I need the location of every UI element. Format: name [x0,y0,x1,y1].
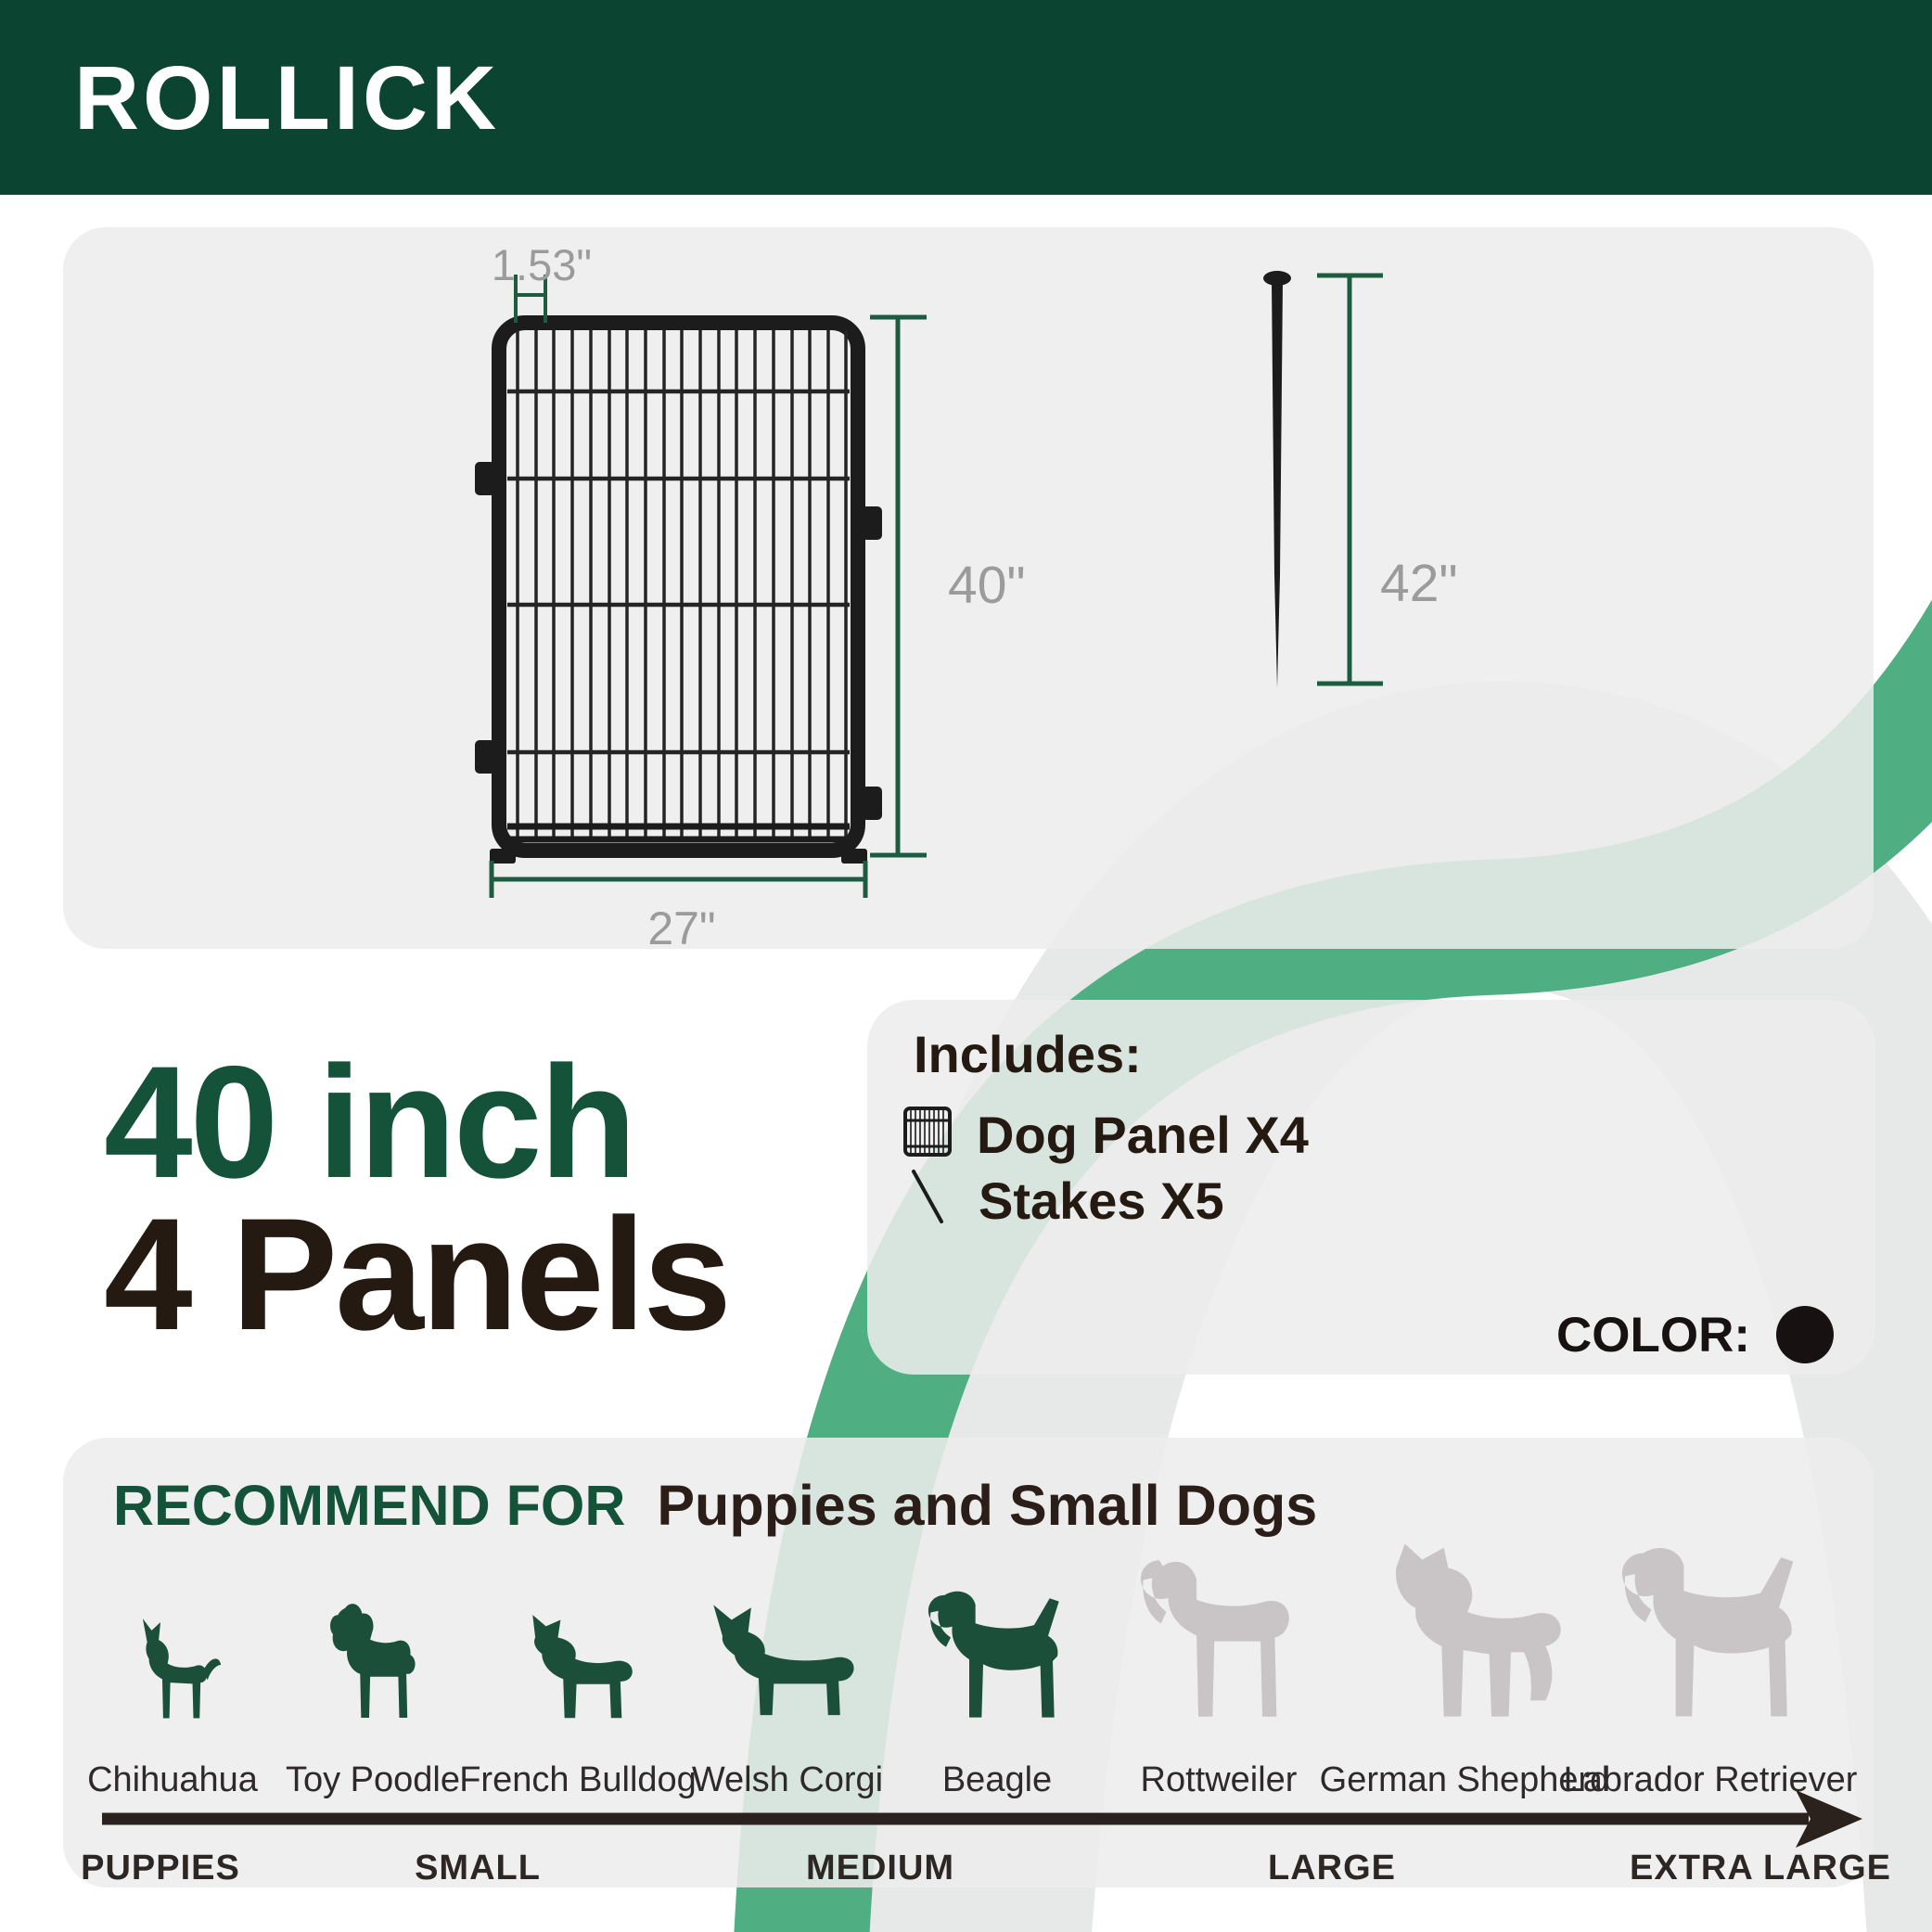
size-label-small: SMALL [415,1849,541,1888]
infographic-canvas: ROLLICK [0,0,1932,1932]
size-scale-axis [0,0,1932,1932]
size-label-medium: MEDIUM [806,1849,954,1888]
size-label-puppies: PUPPIES [81,1849,240,1888]
size-label-large: LARGE [1268,1849,1396,1888]
header-bar: ROLLICK [0,0,1932,195]
brand-logo-text: ROLLICK [74,53,500,143]
size-label-extra-large: EXTRA LARGE [1630,1849,1891,1888]
